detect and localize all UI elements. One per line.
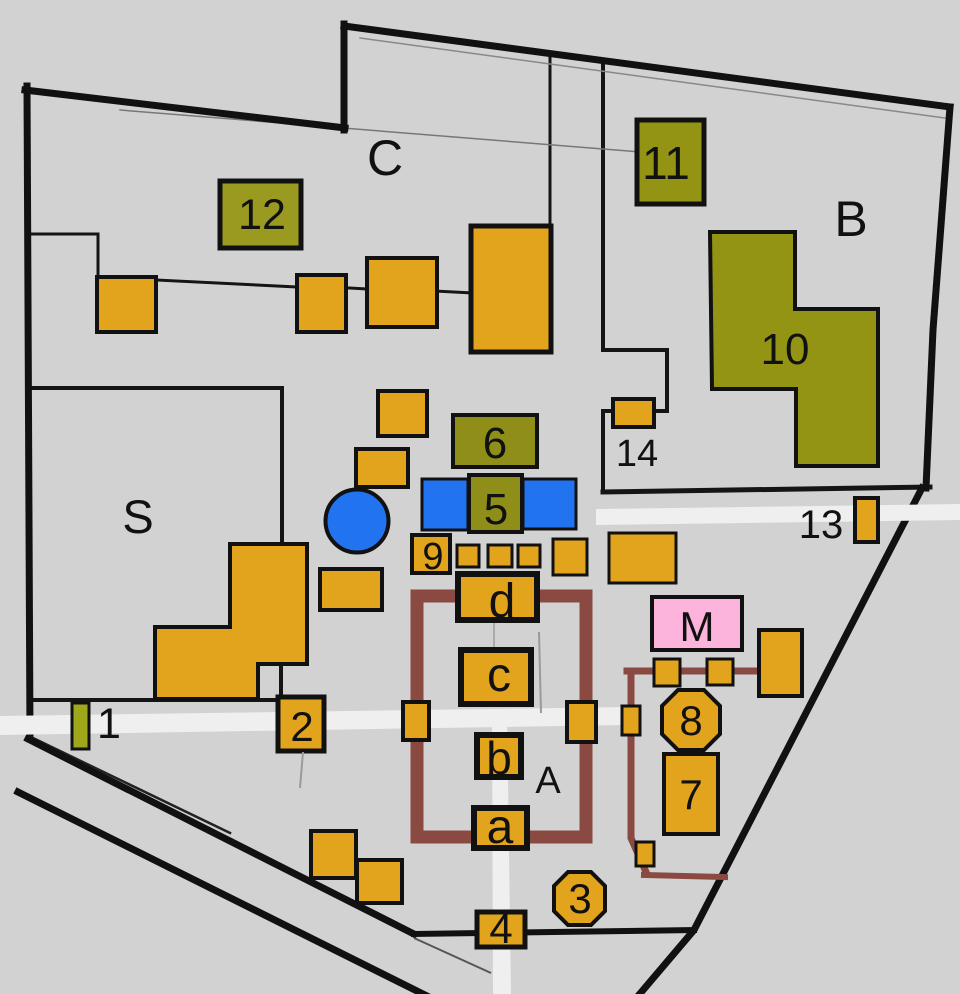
svg-text:5: 5 — [484, 485, 508, 534]
svg-text:11: 11 — [642, 137, 690, 189]
svg-text:C: C — [367, 130, 403, 186]
svg-text:M: M — [680, 603, 715, 650]
svg-text:A: A — [535, 760, 561, 802]
svg-text:b: b — [486, 732, 512, 784]
svg-text:10: 10 — [761, 325, 810, 374]
svg-text:4: 4 — [489, 905, 512, 952]
svg-text:12: 12 — [238, 191, 286, 239]
svg-text:8: 8 — [679, 697, 702, 744]
svg-text:9: 9 — [422, 536, 443, 578]
svg-text:6: 6 — [483, 419, 507, 468]
svg-text:B: B — [834, 191, 867, 247]
svg-text:13: 13 — [799, 503, 844, 547]
svg-text:d: d — [489, 575, 516, 628]
svg-text:a: a — [487, 801, 514, 854]
svg-text:7: 7 — [679, 771, 702, 818]
svg-text:3: 3 — [568, 875, 591, 922]
svg-text:S: S — [122, 490, 153, 543]
svg-text:2: 2 — [290, 703, 313, 750]
svg-text:14: 14 — [616, 433, 658, 475]
svg-text:1: 1 — [97, 700, 121, 748]
svg-text:c: c — [487, 649, 511, 702]
